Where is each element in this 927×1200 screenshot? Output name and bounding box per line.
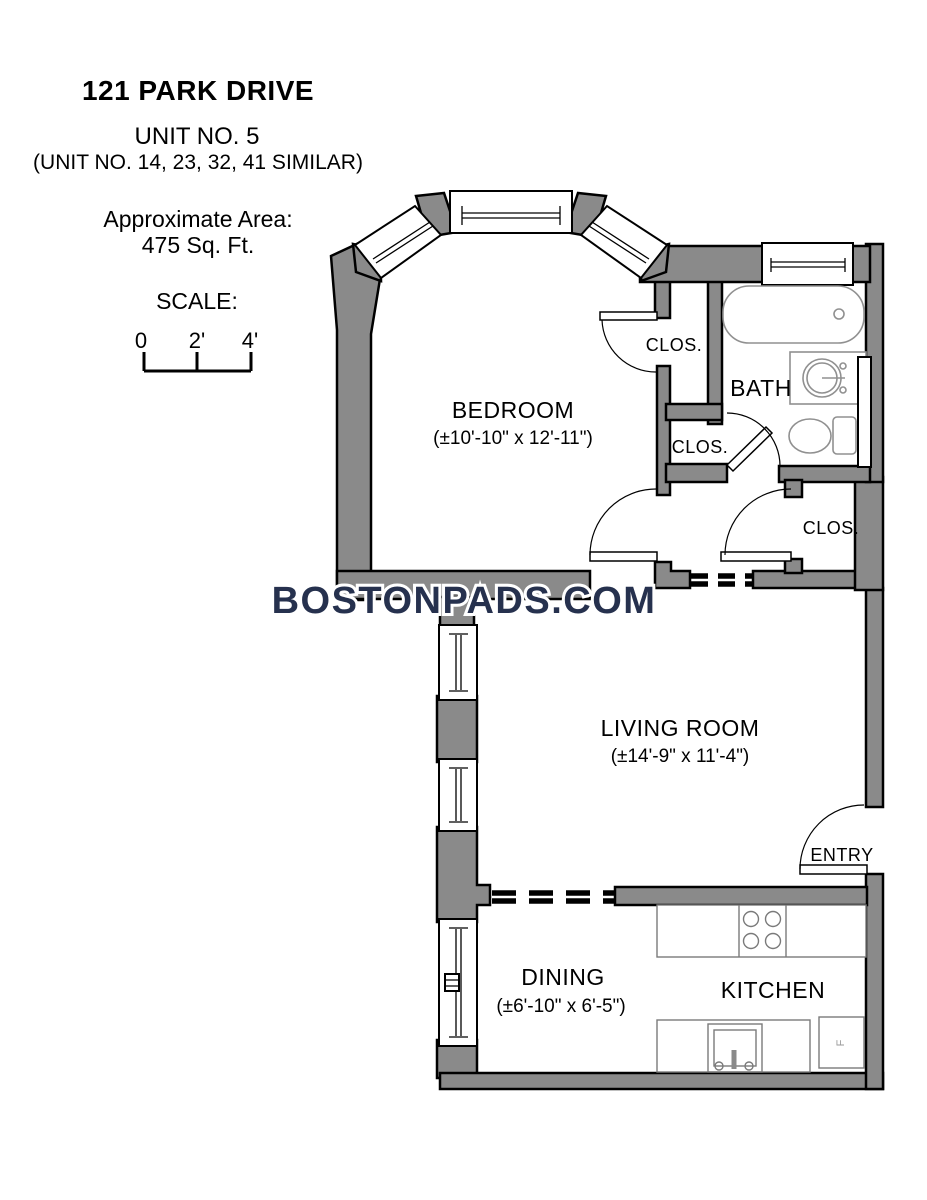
wall-closet1-bottom [666,404,722,420]
wall-bedroom-left [331,242,380,600]
dining-label: DINING [521,964,605,990]
living-room-label: LIVING ROOM [601,715,760,741]
bath-label: BATH [730,375,792,401]
bath-radiator [858,357,871,467]
scale-bar [144,352,251,371]
wall-hall-bottom-right [753,571,868,588]
bay-window-center [450,191,572,233]
wall-right-lower [866,874,883,1089]
toilet-tank [833,417,856,454]
refrigerator-label: F [835,1039,847,1046]
closet-bedroom-label: CLOS. [646,335,703,355]
bath-door [727,413,780,471]
area-value: 475 Sq. Ft. [142,232,255,258]
wall-right-living [866,588,883,807]
wall-hall-bottom-left-stub [655,562,690,588]
bedroom-door [590,489,657,561]
dining-window [439,919,477,1046]
floor-plan-page: 121 PARK DRIVE UNIT NO. 5 (UNIT NO. 14, … [0,0,927,1200]
header: 121 PARK DRIVE UNIT NO. 5 (UNIT NO. 14, … [33,75,363,258]
closet-hall-small-label: CLOS. [672,437,729,457]
scale-label: SCALE: [156,288,238,314]
similar-units: (UNIT NO. 14, 23, 32, 41 SIMILAR) [33,151,363,174]
wall-bottom [440,1073,883,1089]
wall-closet1-bath-divider [708,278,722,424]
watermark: BOSTONPADS.COM [272,580,657,622]
scale-tick-0: 0 [135,328,147,353]
living-room-dims: (±14'-9" x 11'-4") [611,746,750,767]
toilet-bowl [789,419,831,453]
kitchen-counter-top [657,905,866,957]
wall-closet2-bottom [666,464,727,482]
closet-hall-label: CLOS. [803,518,860,538]
scale-indicator: SCALE: 0 2' 4' [135,288,258,371]
bedroom-label: BEDROOM [452,397,574,423]
floor-plan-svg: 121 PARK DRIVE UNIT NO. 5 (UNIT NO. 14, … [0,0,927,1200]
hall-closet-door [721,489,791,561]
page-title: 121 PARK DRIVE [82,75,314,106]
dining-dims: (±6'-10" x 6'-5") [496,996,625,1017]
scale-tick-2ft: 2' [189,328,205,353]
refrigerator: F [819,1017,864,1068]
bathtub [723,286,864,343]
opening-living-dining [492,893,615,901]
bedroom-dims: (±10'-10" x 12'-11") [433,428,593,449]
living-window-lower [439,759,477,831]
living-window-upper [439,625,477,700]
kitchen-label: KITCHEN [721,977,825,1003]
entry-label: ENTRY [810,845,873,865]
wall-living-left-pier2 [437,827,490,922]
opening-hall-living [691,576,753,584]
wall-living-left-pier1 [437,696,477,762]
wall-dining-top [615,887,867,905]
bath-window [762,243,853,285]
area-label: Approximate Area: [103,206,292,232]
scale-tick-4ft: 4' [242,328,258,353]
unit-number: UNIT NO. 5 [135,123,260,150]
